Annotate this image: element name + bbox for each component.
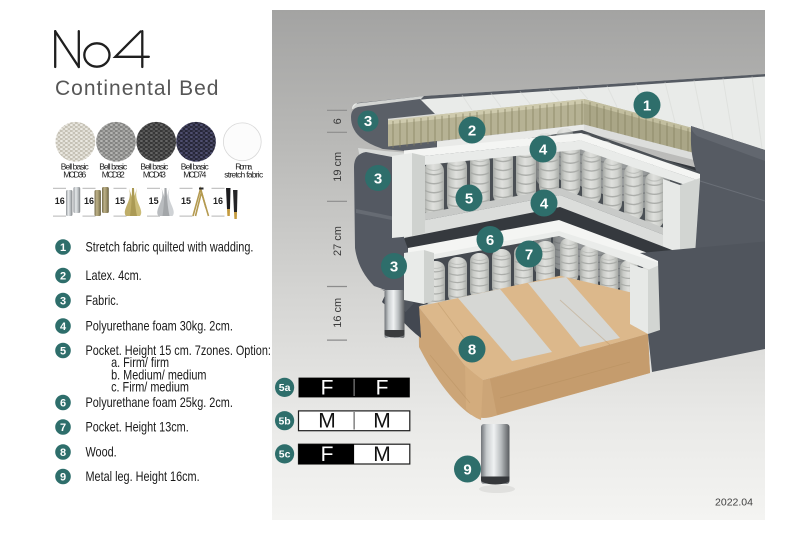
svg-text:M: M	[373, 443, 391, 466]
svg-text:16 cm: 16 cm	[332, 298, 344, 328]
svg-text:Pocket. Height 13cm.: Pocket. Height 13cm.	[86, 420, 189, 435]
svg-text:7: 7	[60, 422, 66, 434]
svg-text:27 cm: 27 cm	[332, 226, 344, 256]
svg-text:Wood.: Wood.	[86, 445, 117, 460]
svg-text:15: 15	[115, 196, 125, 206]
svg-text:F: F	[321, 443, 334, 466]
svg-text:Continental Bed: Continental Bed	[55, 77, 219, 100]
svg-text:5a: 5a	[279, 382, 291, 394]
svg-text:M: M	[373, 410, 391, 433]
svg-text:1: 1	[60, 242, 66, 254]
svg-text:4: 4	[60, 321, 67, 333]
svg-text:stretch fabric: stretch fabric	[224, 170, 264, 180]
svg-text:2: 2	[468, 122, 476, 139]
svg-text:M: M	[318, 410, 336, 433]
svg-text:Polyurethane foam 25kg. 2cm.: Polyurethane foam 25kg. 2cm.	[86, 395, 233, 410]
svg-text:6: 6	[486, 232, 494, 249]
svg-text:3: 3	[364, 113, 372, 130]
svg-text:4: 4	[539, 141, 548, 158]
svg-text:6: 6	[332, 118, 344, 124]
svg-text:3: 3	[374, 170, 382, 187]
svg-text:5c: 5c	[279, 449, 291, 461]
svg-text:15: 15	[181, 196, 191, 206]
svg-text:7: 7	[525, 246, 533, 263]
svg-text:Polyurethane foam 30kg. 2cm.: Polyurethane foam 30kg. 2cm.	[86, 319, 233, 334]
svg-text:16: 16	[213, 196, 223, 206]
svg-text:Stretch fabric quilted with wa: Stretch fabric quilted with wadding.	[86, 240, 254, 255]
svg-text:8: 8	[468, 341, 476, 358]
svg-text:5: 5	[465, 190, 473, 207]
svg-text:MCD32: MCD32	[102, 170, 125, 180]
svg-text:2022.04: 2022.04	[715, 497, 753, 509]
svg-text:Metal leg. Height 16cm.: Metal leg. Height 16cm.	[86, 469, 200, 484]
svg-text:5: 5	[60, 346, 66, 358]
svg-text:9: 9	[463, 461, 471, 478]
svg-text:c. Firm/ medium: c. Firm/ medium	[111, 380, 189, 395]
svg-text:9: 9	[60, 472, 66, 484]
svg-text:F: F	[321, 376, 334, 399]
svg-text:MCD74: MCD74	[183, 170, 206, 180]
svg-text:F: F	[376, 376, 389, 399]
svg-text:Fabric.: Fabric.	[86, 293, 119, 308]
svg-text:1: 1	[643, 97, 651, 114]
svg-text:5b: 5b	[278, 415, 290, 427]
svg-text:16: 16	[55, 196, 65, 206]
svg-text:16: 16	[84, 196, 94, 206]
svg-text:2: 2	[60, 271, 66, 283]
svg-text:19 cm: 19 cm	[332, 152, 344, 182]
svg-text:15: 15	[149, 196, 159, 206]
svg-text:MCD36: MCD36	[63, 170, 86, 180]
svg-text:MCD43: MCD43	[143, 170, 166, 180]
svg-text:Latex. 4cm.: Latex. 4cm.	[86, 268, 142, 283]
svg-text:8: 8	[60, 447, 66, 459]
svg-text:3: 3	[60, 296, 66, 308]
svg-text:3: 3	[390, 258, 398, 275]
svg-text:6: 6	[60, 398, 66, 410]
svg-text:4: 4	[540, 195, 549, 212]
